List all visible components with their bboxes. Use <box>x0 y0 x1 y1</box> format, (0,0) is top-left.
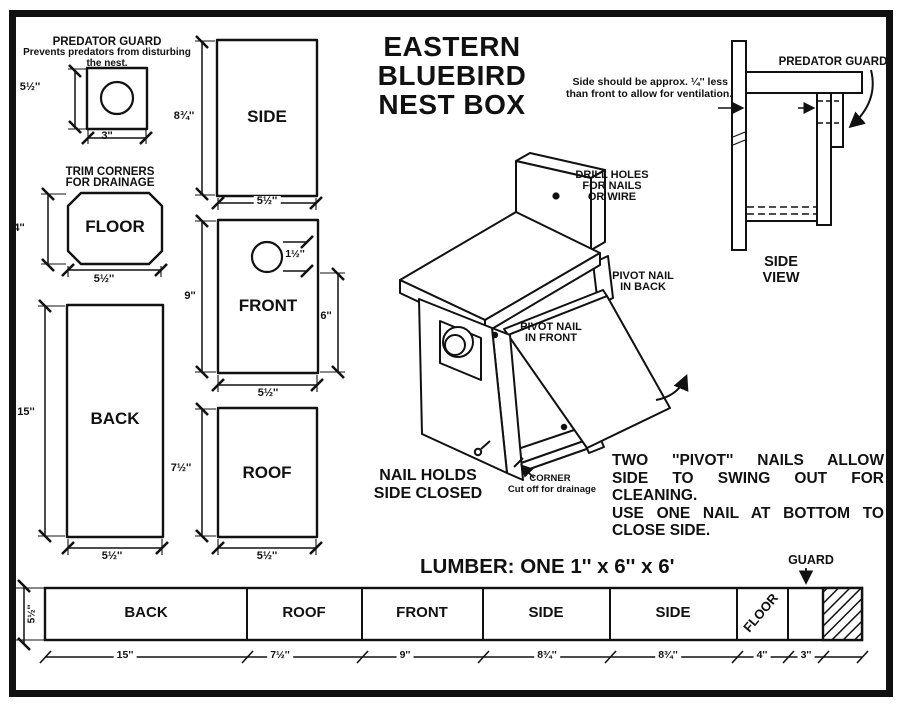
front-hole-dim: 1½'' <box>285 249 305 260</box>
lumber-section-side-1: SIDE <box>528 605 563 621</box>
back-width-dim: 5½'' <box>102 551 123 563</box>
side-height-dim: 8¾'' <box>174 111 195 123</box>
back-label: BACK <box>90 410 139 428</box>
lumber-dim-guard: 3'' <box>798 650 815 661</box>
back-height-dim: 15'' <box>17 407 34 419</box>
sv-roof-board <box>746 72 862 93</box>
trim-corners-heading-2: FOR DRAINAGE <box>66 177 155 189</box>
page-title-line-3: NEST BOX <box>378 90 525 120</box>
lumber-dim-side-2: 8¾'' <box>655 650 681 661</box>
pivot-nail-back-label-2: IN BACK <box>620 282 666 294</box>
side-view-caption-1: SIDE <box>764 255 798 271</box>
lumber-guard-label: GUARD <box>788 554 834 568</box>
guard-hole-inner <box>445 335 465 355</box>
lumber-dim-roof: 7½'' <box>267 650 293 661</box>
lumber-board-height-dim: 5½'' <box>28 605 39 624</box>
side-view-drawing <box>718 41 873 250</box>
pivot-nail-front-dot <box>493 333 497 337</box>
lumber-dim-back: 15'' <box>114 650 137 661</box>
pivot-nail-front-label-2: IN FRONT <box>525 333 577 345</box>
sv-floor-dashed <box>747 207 816 214</box>
lumber-dim-side-1: 8¾'' <box>534 650 560 661</box>
roof-label: ROOF <box>242 464 291 482</box>
side-label: SIDE <box>247 108 287 126</box>
assembly-drawing <box>400 153 686 480</box>
lumber-section-back: BACK <box>124 605 167 621</box>
lumber-section-side-2: SIDE <box>655 605 690 621</box>
side-view-predator-guard-label: PREDATOR GUARD <box>779 56 888 68</box>
ventilation-note-2: than front to allow for ventilation. <box>566 89 728 100</box>
nail-holds-label-1: NAIL HOLDS <box>379 467 476 484</box>
instructions-line-4: USE ONE NAIL AT BOTTOM TO <box>612 505 884 522</box>
bottom-nail-dot <box>562 425 566 429</box>
side-width-dim: 5½'' <box>254 196 281 208</box>
instructions-line-5: CLOSE SIDE. <box>612 522 884 539</box>
ventilation-note-1: Side should be approx. ¼'' less <box>566 77 728 88</box>
roof-height-dim: 7½'' <box>171 463 192 475</box>
side-view-caption-2: VIEW <box>762 271 799 287</box>
floor-height-dim: 4'' <box>13 223 24 235</box>
predator-guard-height-dim: 5½'' <box>20 82 41 94</box>
lumber-section-front: FRONT <box>396 605 448 621</box>
instructions-line-3: CLEANING. <box>612 487 884 504</box>
lumber-dim-floor: 4'' <box>754 650 771 661</box>
front-label: FRONT <box>239 297 298 315</box>
floor-label: FLOOR <box>85 218 145 236</box>
lumber-section-roof: ROOF <box>282 605 325 621</box>
sv-front-board <box>817 93 831 225</box>
lumber-waste-hatched <box>823 588 862 640</box>
instructions-line-1: TWO ''PIVOT'' NAILS ALLOW <box>612 452 884 469</box>
entrance-hole <box>252 242 282 272</box>
blueprint-sheet: PREDATOR GUARD Prevents predators from d… <box>0 0 900 704</box>
closing-nail-head <box>475 449 481 455</box>
floor-width-dim: 5½'' <box>94 274 115 286</box>
corner-note: Cut off for drainage <box>508 485 596 495</box>
predator-guard-hole <box>101 82 133 114</box>
front-height-dim: 9'' <box>184 291 195 303</box>
sv-back-board <box>732 41 746 250</box>
drill-hole-dot <box>553 193 558 198</box>
predator-guard-width-dim: 3'' <box>101 131 112 143</box>
corner-label: CORNER <box>529 474 570 484</box>
page-title-line-2: BLUEBIRD <box>378 61 527 91</box>
page-title-line-1: EASTERN <box>383 32 520 62</box>
predator-guard-desc-2: the nest. <box>86 59 127 70</box>
front-hole-height-dim: 6'' <box>320 311 331 323</box>
front-width-dim: 5½'' <box>258 388 279 400</box>
drill-holes-label-3: OR WIRE <box>588 192 636 204</box>
lumber-title: LUMBER: ONE 1'' x 6'' x 6' <box>420 556 675 578</box>
lumber-dim-front: 9'' <box>397 650 414 661</box>
nail-holds-label-2: SIDE CLOSED <box>374 485 482 502</box>
instructions-line-2: SIDE TO SWING OUT FOR <box>612 470 884 487</box>
roof-width-dim: 5½'' <box>257 551 278 563</box>
